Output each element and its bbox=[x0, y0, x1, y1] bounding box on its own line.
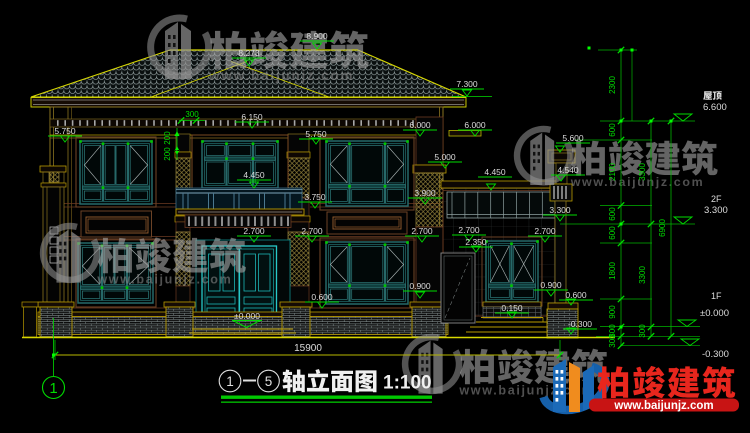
svg-text:±0.000: ±0.000 bbox=[700, 308, 729, 319]
svg-text:600: 600 bbox=[608, 226, 617, 240]
svg-text:4.540: 4.540 bbox=[557, 165, 579, 175]
svg-text:2100: 2100 bbox=[608, 163, 617, 181]
svg-text:5.750: 5.750 bbox=[54, 126, 76, 136]
svg-text:6900: 6900 bbox=[658, 219, 667, 237]
svg-text:3.900: 3.900 bbox=[414, 188, 436, 198]
svg-text:1800: 1800 bbox=[608, 262, 617, 280]
svg-text:1F: 1F bbox=[711, 291, 722, 301]
svg-text:5: 5 bbox=[265, 374, 273, 389]
svg-text:7.300: 7.300 bbox=[456, 79, 478, 89]
svg-text:300: 300 bbox=[638, 324, 647, 338]
svg-text:3.300: 3.300 bbox=[549, 205, 571, 215]
svg-text:2.700: 2.700 bbox=[411, 226, 433, 236]
svg-text:5.750: 5.750 bbox=[305, 129, 327, 139]
svg-text:0.600: 0.600 bbox=[565, 290, 587, 300]
svg-text:0.900: 0.900 bbox=[409, 281, 431, 291]
svg-text:6.000: 6.000 bbox=[464, 120, 486, 130]
svg-text:8.900: 8.900 bbox=[306, 31, 328, 41]
svg-text:900: 900 bbox=[608, 305, 617, 319]
svg-text:4.450: 4.450 bbox=[484, 167, 506, 177]
svg-text:2300: 2300 bbox=[608, 76, 617, 94]
svg-text:6.000: 6.000 bbox=[409, 120, 431, 130]
svg-text:2.700: 2.700 bbox=[301, 226, 323, 236]
svg-text:200: 200 bbox=[163, 147, 172, 161]
svg-text:2.700: 2.700 bbox=[243, 226, 265, 236]
svg-text:3.750: 3.750 bbox=[304, 192, 326, 202]
svg-text:3.300: 3.300 bbox=[704, 205, 728, 216]
svg-text:600: 600 bbox=[608, 207, 617, 221]
svg-text:300: 300 bbox=[608, 334, 617, 348]
svg-text:300: 300 bbox=[185, 110, 199, 119]
svg-text:0.150: 0.150 bbox=[501, 303, 523, 313]
svg-text:3300: 3300 bbox=[638, 163, 647, 181]
svg-text:0.900: 0.900 bbox=[540, 280, 562, 290]
svg-text:4.450: 4.450 bbox=[243, 170, 265, 180]
svg-text:www.baijunjz.com: www.baijunjz.com bbox=[96, 273, 232, 287]
svg-text:-0.300: -0.300 bbox=[702, 349, 729, 360]
svg-text:www.baijunjz.com: www.baijunjz.com bbox=[570, 175, 705, 189]
svg-text:2.700: 2.700 bbox=[458, 225, 480, 235]
svg-text:2F: 2F bbox=[711, 194, 722, 204]
svg-text:1: 1 bbox=[226, 374, 234, 389]
svg-text:5.600: 5.600 bbox=[562, 133, 584, 143]
svg-text:5.000: 5.000 bbox=[434, 152, 456, 162]
svg-text:600: 600 bbox=[608, 123, 617, 137]
svg-text:6.600: 6.600 bbox=[703, 102, 727, 113]
svg-text:-0.300: -0.300 bbox=[568, 319, 592, 329]
svg-text:www.baijunjz.com: www.baijunjz.com bbox=[208, 68, 354, 83]
svg-text:200: 200 bbox=[163, 131, 172, 145]
svg-text:6.150: 6.150 bbox=[241, 112, 263, 122]
svg-text:0.600: 0.600 bbox=[311, 292, 333, 302]
svg-text:1: 1 bbox=[49, 380, 57, 397]
svg-text:2.350: 2.350 bbox=[465, 237, 487, 247]
svg-text:3300: 3300 bbox=[638, 266, 647, 284]
svg-text:1:100: 1:100 bbox=[383, 373, 432, 394]
svg-text:2.700: 2.700 bbox=[534, 226, 556, 236]
svg-text:±0.000: ±0.000 bbox=[234, 311, 260, 321]
svg-text:www.baijunjz.com: www.baijunjz.com bbox=[613, 400, 713, 412]
svg-text:8.273: 8.273 bbox=[238, 48, 260, 58]
svg-text:15900: 15900 bbox=[294, 343, 322, 354]
